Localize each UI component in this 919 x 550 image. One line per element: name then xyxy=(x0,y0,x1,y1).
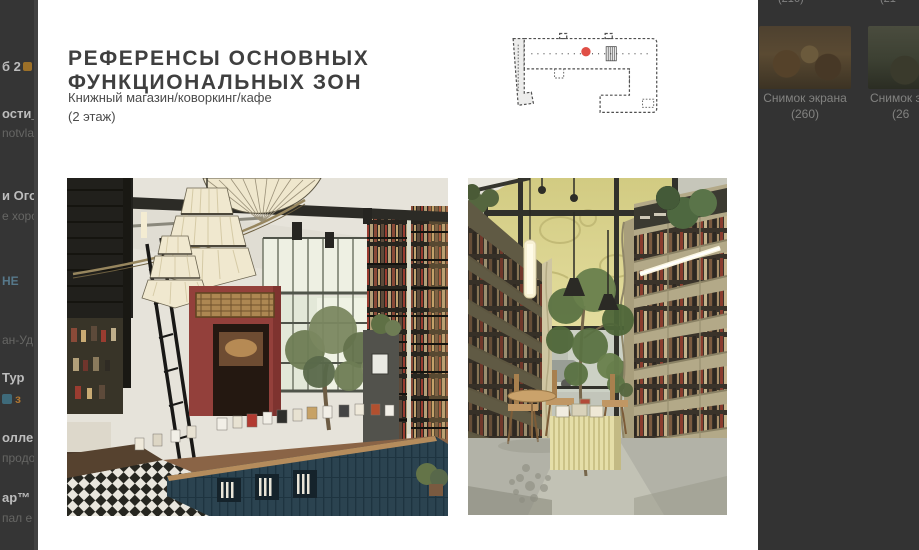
dimmed-chat-sidebar: б 21 ости_ notvla и Ого е хоро НЕ ан-Уд … xyxy=(0,0,38,550)
photo-bookstore-cafe xyxy=(468,178,727,515)
chat-message-preview: пал е xyxy=(2,511,32,525)
chat-item[interactable]: оллег xyxy=(2,430,38,445)
photo-bookstore-counter xyxy=(67,178,448,516)
emoji-icon xyxy=(23,62,32,71)
chat-message-preview: продол xyxy=(2,451,38,465)
chat-item[interactable]: Тур xyxy=(2,370,24,385)
chat-message-preview: ан-Уд xyxy=(2,333,33,347)
location-marker xyxy=(581,47,590,56)
file-thumbnail[interactable] xyxy=(759,26,851,89)
chat-item[interactable]: б 21 xyxy=(2,58,38,76)
slide-preview[interactable]: РЕФЕРЕНСЫ ОСНОВНЫХ ФУНКЦИОНАЛЬНЫХ ЗОН Кн… xyxy=(38,0,758,550)
slide-subtitle: Книжный магазин/коворкинг/кафе (2 этаж) xyxy=(68,88,272,126)
chat-item[interactable]: и Ого xyxy=(2,188,37,203)
chat-link-preview[interactable]: НЕ xyxy=(2,274,19,288)
file-caption: Снимок экрана (260) xyxy=(759,90,851,122)
photo-thumbnail-icon xyxy=(2,394,12,404)
chat-message-preview: е хоро xyxy=(2,209,38,223)
chat-message-preview: notvla xyxy=(2,126,34,140)
dimmed-file-grid: (216) (21 Снимок экрана (260) Снимок экр… xyxy=(758,0,919,550)
floorplan-diagram xyxy=(501,24,681,134)
chat-media-preview[interactable]: з xyxy=(2,390,21,408)
file-label-partial: (21 xyxy=(880,0,896,5)
file-thumbnail[interactable] xyxy=(868,26,919,89)
file-label-partial: (216) xyxy=(778,0,804,5)
chat-item[interactable]: ости_ xyxy=(2,106,38,121)
screen: б 21 ости_ notvla и Ого е хоро НЕ ан-Уд … xyxy=(0,0,919,550)
file-caption: Снимок экра (26 xyxy=(868,90,919,122)
chat-item[interactable]: ар™ xyxy=(2,490,30,505)
